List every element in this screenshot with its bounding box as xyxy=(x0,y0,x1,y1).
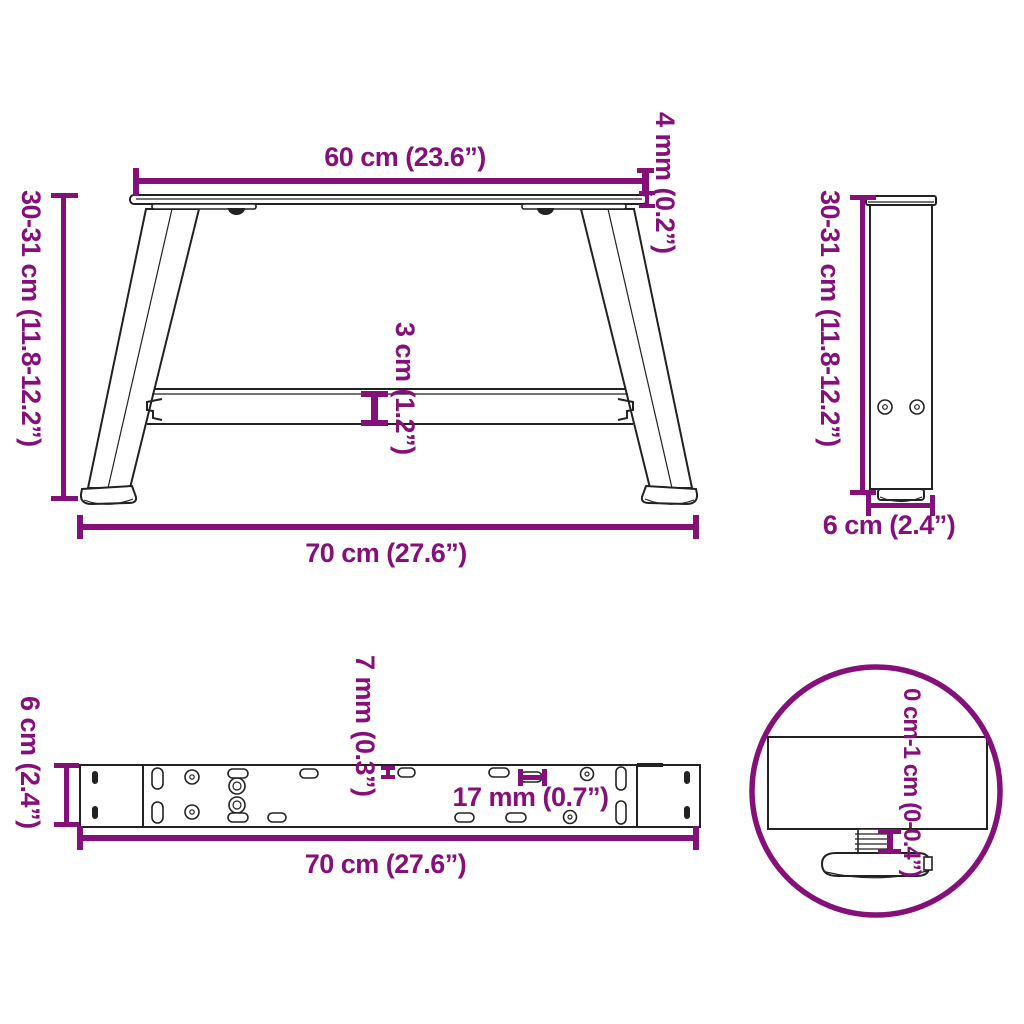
dim-side-depth: 6 cm (2.4”) xyxy=(789,512,989,539)
front-view-drawing xyxy=(81,195,697,504)
dimension-diagram: 60 cm (23.6”) 4 mm (0.2”) 30-31 cm (11.8… xyxy=(0,0,1024,1024)
dim-top-length: 70 cm (27.6”) xyxy=(283,851,488,878)
dim-top-slot-length: 17 mm (0.7”) xyxy=(428,784,633,811)
dim-detail-adjustment-range: 0 cm-1 cm (0-0.4”) xyxy=(899,688,923,877)
dim-top-hole-diameter: 7 mm (0.3”) xyxy=(351,655,378,797)
detail-view-drawing xyxy=(752,667,1000,915)
side-view-drawing xyxy=(866,196,936,502)
dim-front-bottom-width: 70 cm (27.6”) xyxy=(286,540,486,567)
dim-front-top-width: 60 cm (23.6”) xyxy=(255,144,555,171)
dim-top-depth: 6 cm (2.4”) xyxy=(16,696,43,829)
dim-side-height: 30-31 cm (11.8-12.2”) xyxy=(816,190,843,447)
dim-front-crossbar-height: 3 cm (1.2”) xyxy=(391,322,418,455)
dim-front-plate-thickness: 4 mm (0.2”) xyxy=(651,112,678,254)
dim-front-height: 30-31 cm (11.8-12.2”) xyxy=(17,190,44,447)
